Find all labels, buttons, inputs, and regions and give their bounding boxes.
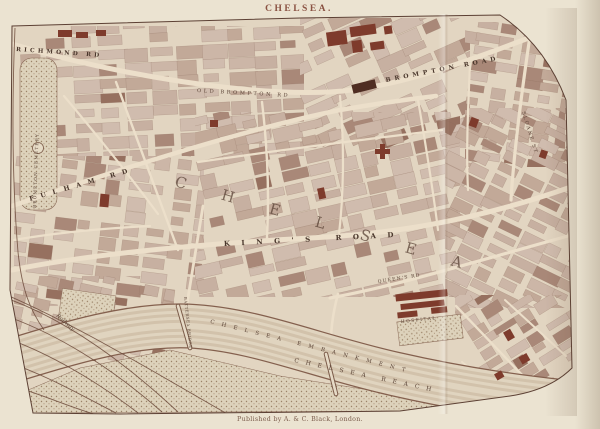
page-curl-shading <box>545 8 577 416</box>
dark-building <box>58 30 72 37</box>
museum-block <box>326 30 348 47</box>
museum-block <box>351 40 363 53</box>
map-plate: RICHMOND RD OLD BROMPTON RD FULHAM RD BR… <box>0 0 600 429</box>
fold-crease <box>438 14 454 414</box>
publisher-credit: Published by A. & C. Black, London. <box>237 416 363 423</box>
page-edge-shading <box>575 0 600 429</box>
dark-building <box>96 30 106 36</box>
scanned-map-page: CHELSEA. <box>0 0 600 429</box>
dark-building <box>76 32 88 38</box>
dark-building <box>99 194 109 208</box>
museum-block <box>384 25 393 34</box>
dark-building <box>210 120 218 127</box>
page-title: CHELSEA. <box>265 4 333 14</box>
